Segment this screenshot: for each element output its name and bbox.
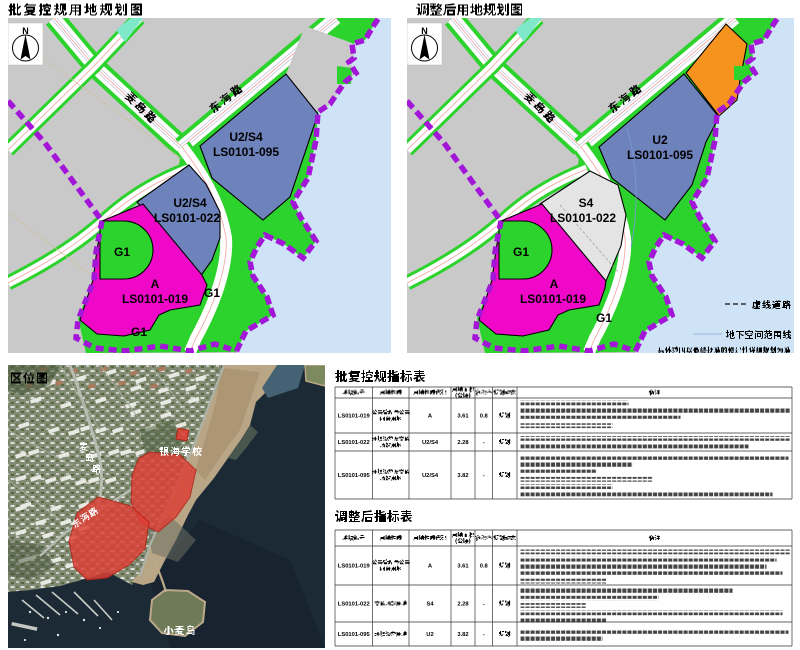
svg-text:U2: U2: [652, 133, 668, 147]
svg-text:G1: G1: [596, 311, 612, 325]
svg-text:3.61: 3.61: [457, 414, 469, 420]
svg-text:LS0101-019: LS0101-019: [338, 564, 371, 570]
svg-text:LS0101-095: LS0101-095: [627, 148, 693, 162]
svg-text:3.61: 3.61: [457, 564, 469, 570]
svg-text:-: -: [483, 440, 485, 446]
svg-text:A: A: [550, 277, 559, 291]
svg-text:LS0101-019: LS0101-019: [520, 292, 586, 306]
svg-text:LS0101-095: LS0101-095: [338, 632, 371, 638]
svg-text:U2/S4: U2/S4: [422, 440, 439, 446]
svg-text:G1: G1: [513, 245, 529, 259]
svg-text:N: N: [22, 26, 29, 36]
svg-text:LS0101-022: LS0101-022: [338, 602, 370, 608]
svg-text:U2: U2: [426, 632, 433, 638]
svg-text:3.82: 3.82: [457, 473, 468, 479]
svg-text:G1: G1: [131, 325, 147, 339]
svg-text:-: -: [483, 632, 485, 638]
svg-text:0.8: 0.8: [480, 564, 489, 570]
svg-text:2.28: 2.28: [457, 602, 469, 608]
svg-text:G1: G1: [204, 286, 220, 300]
svg-text:2.28: 2.28: [457, 440, 469, 446]
svg-text:-: -: [483, 602, 485, 608]
svg-text:A: A: [151, 277, 160, 291]
svg-text:LS0101-095: LS0101-095: [213, 145, 279, 159]
svg-text:LS0101-095: LS0101-095: [338, 473, 371, 479]
svg-text:U2/S4: U2/S4: [229, 130, 263, 144]
svg-text:LS0101-019: LS0101-019: [338, 414, 371, 420]
svg-text:3.82: 3.82: [457, 632, 468, 638]
svg-text:0.8: 0.8: [480, 414, 489, 420]
svg-text:N: N: [421, 26, 428, 36]
svg-text:-: -: [483, 473, 485, 479]
svg-text:LS0101-022: LS0101-022: [154, 211, 220, 225]
svg-text:S4: S4: [426, 602, 434, 608]
svg-text:LS0101-022: LS0101-022: [338, 440, 370, 446]
svg-text:G1: G1: [114, 245, 130, 259]
svg-text:S4: S4: [579, 196, 594, 210]
svg-text:U2/S4: U2/S4: [422, 473, 439, 479]
svg-text:LS0101-019: LS0101-019: [122, 292, 188, 306]
svg-text:LS0101-022: LS0101-022: [550, 211, 616, 225]
svg-text:U2/S4: U2/S4: [173, 196, 207, 210]
